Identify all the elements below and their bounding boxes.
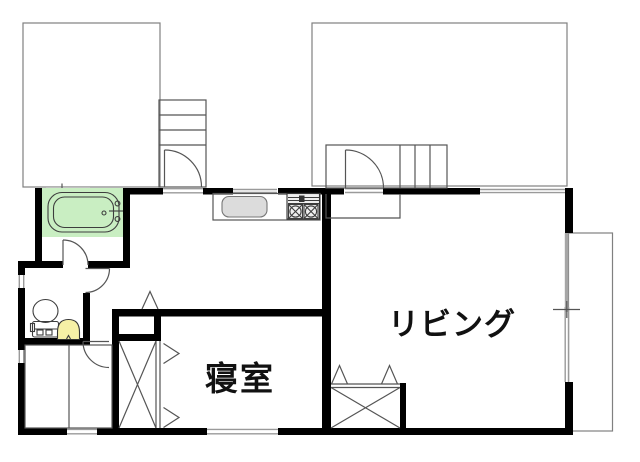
living-closet	[331, 366, 400, 429]
toilet-icon	[31, 300, 59, 338]
balcony-outline	[569, 233, 613, 431]
stairs-upper	[159, 100, 206, 187]
living-room-label: リビング	[388, 307, 516, 342]
storage-room	[25, 345, 112, 428]
balcony-sliding-window	[553, 233, 580, 382]
wall-top-4	[383, 188, 480, 195]
kitchen-window	[233, 190, 277, 193]
wall-bath-right	[123, 188, 130, 268]
closet-triangle-top-1	[332, 366, 348, 385]
stairhall-door	[346, 150, 384, 188]
upper-floor-outlines	[23, 23, 567, 187]
closet-triangle-top-2	[382, 366, 398, 385]
kitchen	[213, 194, 320, 221]
upper-outline-right	[312, 23, 567, 186]
wall-closet-divider	[112, 334, 161, 341]
bath-door-gap	[63, 261, 88, 268]
wall-living-left	[322, 188, 331, 435]
wall-bottom-2	[97, 428, 207, 435]
wall-bath-left	[35, 188, 42, 268]
closet-triangle-right-2	[164, 408, 180, 428]
living-top-window	[480, 190, 565, 193]
kitchen-sink-icon	[222, 197, 267, 218]
bathroom	[42, 188, 123, 237]
balcony	[569, 233, 613, 431]
closet-cross-icon	[119, 341, 156, 428]
floor-plan: リビング 寝室	[0, 0, 640, 462]
upper-outline-left	[23, 23, 160, 187]
two-burner-stove-icon	[287, 194, 320, 220]
wall-bottom-1	[18, 428, 67, 435]
wash-basin-icon	[58, 320, 80, 340]
closet-triangle-top	[142, 292, 158, 310]
bedroom-label: 寝室	[205, 360, 275, 397]
wall-bedroom-top	[112, 309, 331, 317]
stairs-entry-hall	[326, 145, 447, 218]
stairs-entry-steps	[400, 145, 430, 188]
toilet-door-gap	[83, 268, 90, 293]
toilet-room	[31, 300, 80, 340]
entrance-step	[326, 194, 400, 218]
entrance-door	[165, 150, 202, 187]
wall-living-closet-right	[400, 383, 406, 428]
wall-closet-left	[112, 309, 119, 428]
closet-cross-icon	[331, 388, 400, 429]
wall-right-bottom	[565, 382, 573, 435]
wall-right-top	[565, 188, 573, 233]
closet-triangle-right-1	[164, 344, 180, 364]
